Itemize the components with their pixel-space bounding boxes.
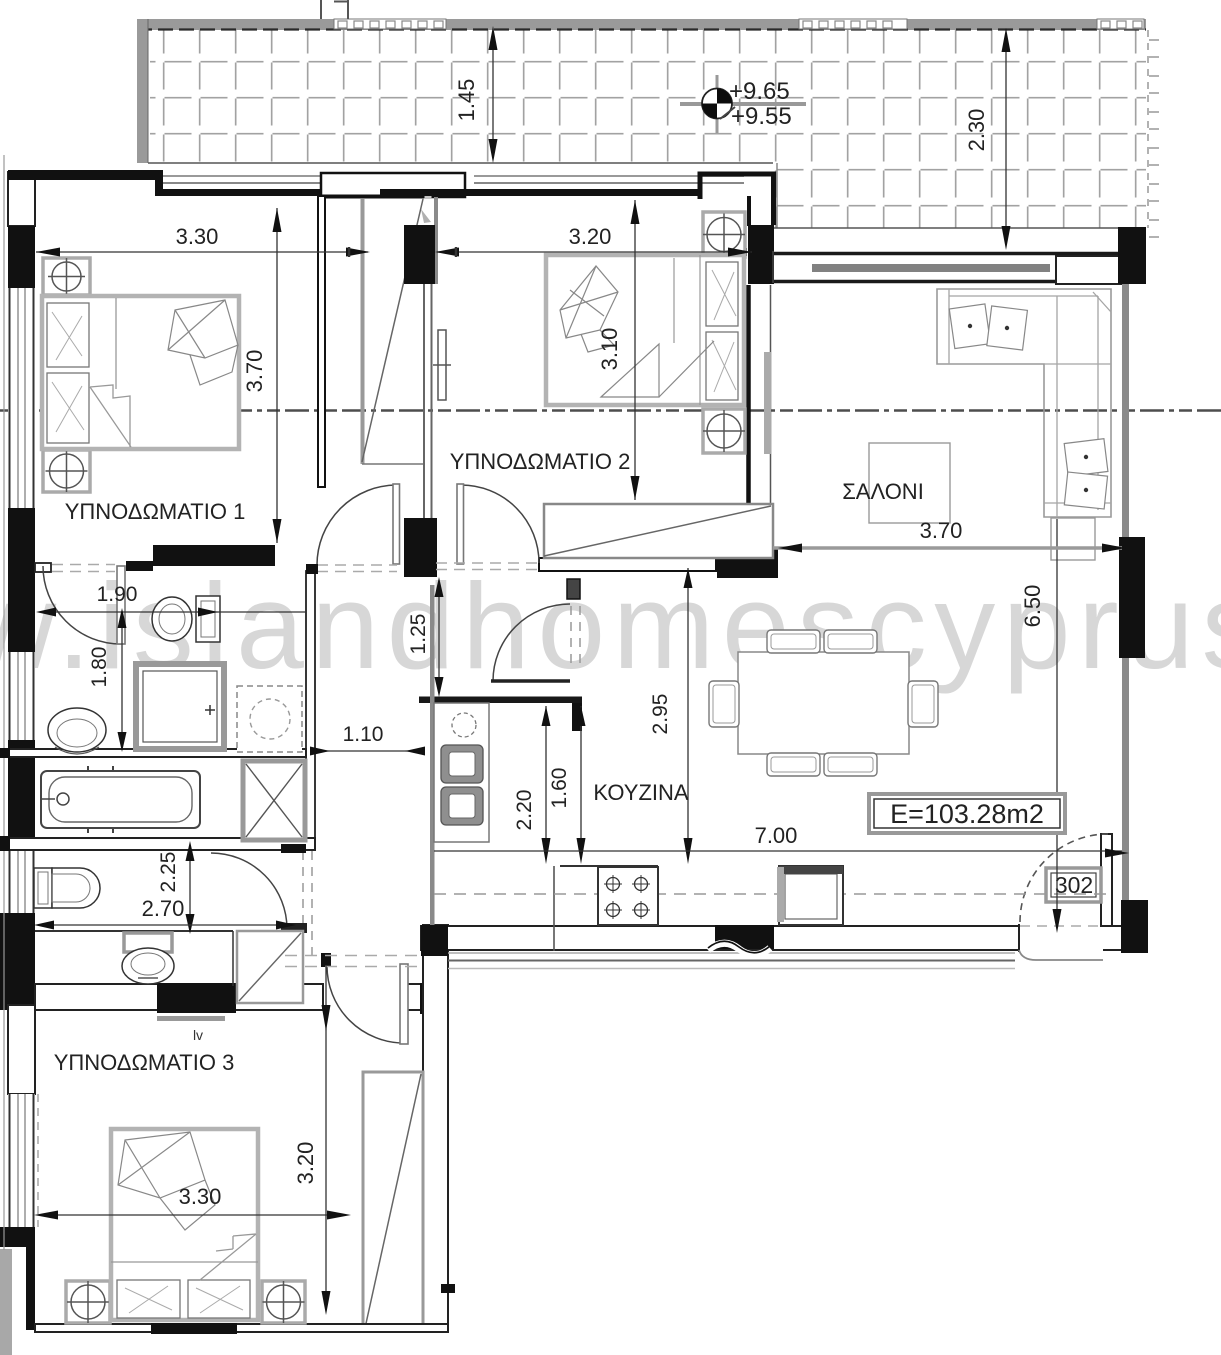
svg-text:1.10: 1.10 [343,723,384,746]
svg-text:2.30: 2.30 [964,109,989,152]
svg-text:1.45: 1.45 [454,79,479,122]
svg-text:ΚΟΥΖΙΝΑ: ΚΟΥΖΙΝΑ [593,780,689,805]
svg-text:ΣΑΛΟΝΙ: ΣΑΛΟΝΙ [842,479,924,504]
svg-text:E=103.28m2: E=103.28m2 [890,799,1044,829]
svg-text:3.30: 3.30 [176,224,219,249]
svg-text:3.20: 3.20 [569,224,612,249]
svg-text:2.20: 2.20 [513,790,536,831]
svg-text:+9.65: +9.65 [729,78,790,105]
svg-text:ΥΠΝΟΔΩΜΑΤΙΟ 3: ΥΠΝΟΔΩΜΑΤΙΟ 3 [54,1050,235,1075]
svg-text:3.70: 3.70 [920,518,963,543]
svg-text:1.80: 1.80 [88,647,111,688]
svg-text:+9.55: +9.55 [731,103,792,130]
svg-text:3.70: 3.70 [242,350,267,393]
svg-text:3.30: 3.30 [179,1184,222,1209]
svg-text:2.70: 2.70 [142,896,185,921]
svg-text:7.00: 7.00 [755,823,798,848]
svg-text:2.95: 2.95 [649,694,672,735]
svg-text:3.10: 3.10 [597,328,622,371]
svg-text:2.25: 2.25 [157,852,180,893]
svg-text:1.60: 1.60 [548,768,571,809]
svg-text:1.25: 1.25 [407,614,430,655]
svg-text:1.90: 1.90 [97,583,138,606]
svg-text:6.50: 6.50 [1020,585,1045,628]
svg-text:3.20: 3.20 [293,1142,318,1185]
svg-text:lv: lv [193,1027,203,1043]
svg-text:ΥΠΝΟΔΩΜΑΤΙΟ 2: ΥΠΝΟΔΩΜΑΤΙΟ 2 [450,449,631,474]
svg-text:ΥΠΝΟΔΩΜΑΤΙΟ 1: ΥΠΝΟΔΩΜΑΤΙΟ 1 [65,499,246,524]
